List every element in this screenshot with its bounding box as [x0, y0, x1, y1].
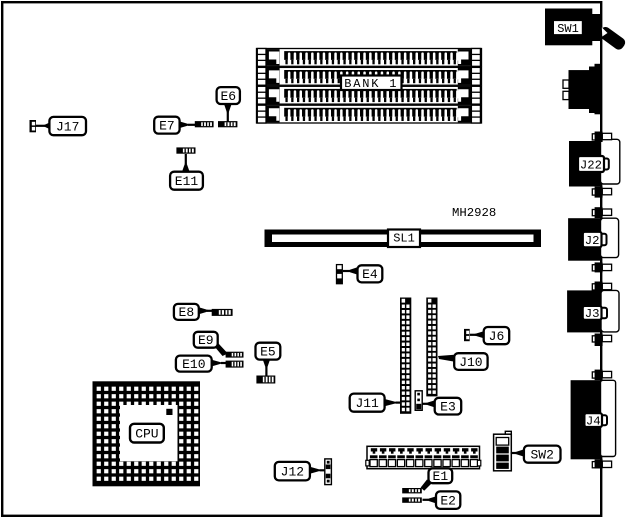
svg-text:E2: E2 [440, 493, 456, 508]
svg-text:E8: E8 [179, 305, 195, 320]
svg-text:E10: E10 [182, 357, 205, 372]
svg-text:J17: J17 [56, 119, 79, 134]
svg-text:J22: J22 [580, 158, 602, 172]
svg-text:J12: J12 [281, 464, 304, 479]
svg-text:SW1: SW1 [557, 22, 579, 36]
svg-text:MH2928: MH2928 [452, 206, 496, 220]
svg-text:E5: E5 [260, 344, 276, 359]
svg-text:BANK 1: BANK 1 [344, 77, 398, 91]
svg-text:J4: J4 [586, 414, 601, 428]
svg-text:E3: E3 [440, 399, 456, 414]
svg-text:J2: J2 [585, 234, 600, 248]
svg-text:J10: J10 [459, 355, 482, 370]
svg-text:E1: E1 [433, 469, 449, 484]
svg-text:J6: J6 [489, 329, 505, 344]
svg-text:SW2: SW2 [530, 447, 553, 462]
svg-text:CPU: CPU [135, 426, 158, 441]
svg-text:E11: E11 [175, 174, 199, 189]
svg-text:J11: J11 [355, 396, 379, 411]
svg-text:E4: E4 [362, 267, 378, 282]
svg-text:J3: J3 [585, 307, 600, 321]
svg-text:E7: E7 [159, 118, 175, 133]
svg-text:SL1: SL1 [393, 231, 415, 245]
svg-text:E6: E6 [220, 89, 236, 104]
svg-text:E9: E9 [198, 333, 214, 348]
